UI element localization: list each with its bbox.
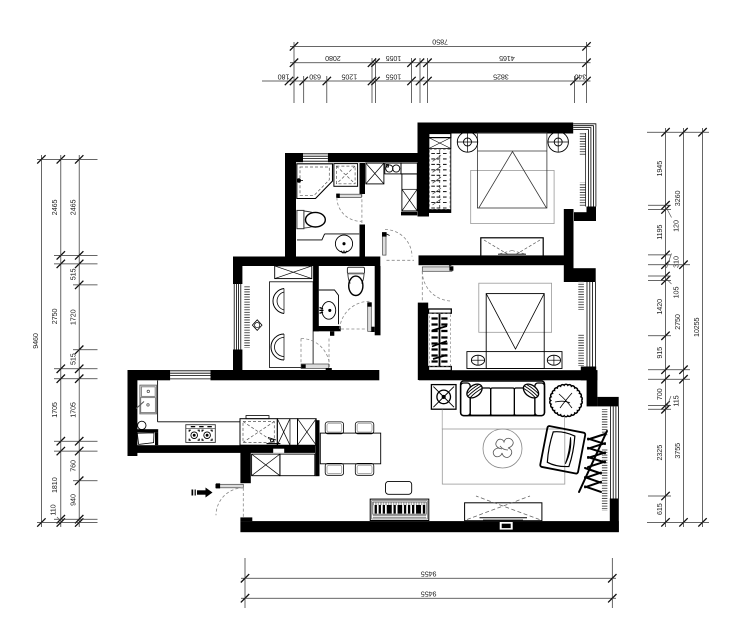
svg-text:120: 120 bbox=[672, 220, 681, 232]
svg-text:2750: 2750 bbox=[673, 314, 682, 330]
svg-text:1055: 1055 bbox=[386, 54, 402, 63]
svg-text:9455: 9455 bbox=[421, 570, 437, 579]
svg-text:7850: 7850 bbox=[432, 38, 448, 47]
svg-text:1705: 1705 bbox=[50, 402, 59, 418]
svg-text:4165: 4165 bbox=[499, 54, 515, 63]
svg-text:2325: 2325 bbox=[655, 445, 664, 461]
svg-text:915: 915 bbox=[655, 347, 664, 359]
svg-text:940: 940 bbox=[69, 494, 78, 506]
svg-text:615: 615 bbox=[655, 503, 664, 515]
svg-text:3260: 3260 bbox=[673, 191, 682, 207]
svg-text:3755: 3755 bbox=[673, 443, 682, 459]
svg-text:1420: 1420 bbox=[655, 299, 664, 315]
svg-text:3825: 3825 bbox=[493, 72, 509, 81]
svg-text:1195: 1195 bbox=[655, 225, 664, 240]
svg-text:9460: 9460 bbox=[31, 333, 40, 349]
svg-text:1945: 1945 bbox=[655, 161, 664, 177]
svg-text:760: 760 bbox=[69, 460, 78, 472]
svg-text:2465: 2465 bbox=[50, 200, 59, 216]
svg-text:2750: 2750 bbox=[50, 309, 59, 325]
svg-text:1705: 1705 bbox=[69, 402, 78, 418]
svg-text:1810: 1810 bbox=[50, 477, 59, 493]
svg-text:630: 630 bbox=[309, 72, 321, 81]
svg-text:9455: 9455 bbox=[421, 590, 437, 599]
svg-text:340: 340 bbox=[575, 72, 587, 81]
svg-text:2465: 2465 bbox=[69, 200, 78, 216]
svg-text:1205: 1205 bbox=[342, 72, 358, 81]
svg-text:310: 310 bbox=[672, 256, 681, 268]
svg-text:10255: 10255 bbox=[692, 317, 701, 337]
svg-text:2080: 2080 bbox=[325, 54, 341, 63]
svg-text:115: 115 bbox=[672, 395, 681, 406]
svg-text:1055: 1055 bbox=[386, 72, 402, 81]
svg-text:1720: 1720 bbox=[69, 309, 78, 325]
svg-text:515: 515 bbox=[69, 353, 78, 365]
svg-text:700: 700 bbox=[655, 388, 664, 400]
svg-text:110: 110 bbox=[48, 504, 57, 515]
svg-text:515: 515 bbox=[69, 268, 78, 280]
svg-text:180: 180 bbox=[278, 72, 290, 81]
svg-text:105: 105 bbox=[672, 287, 681, 299]
